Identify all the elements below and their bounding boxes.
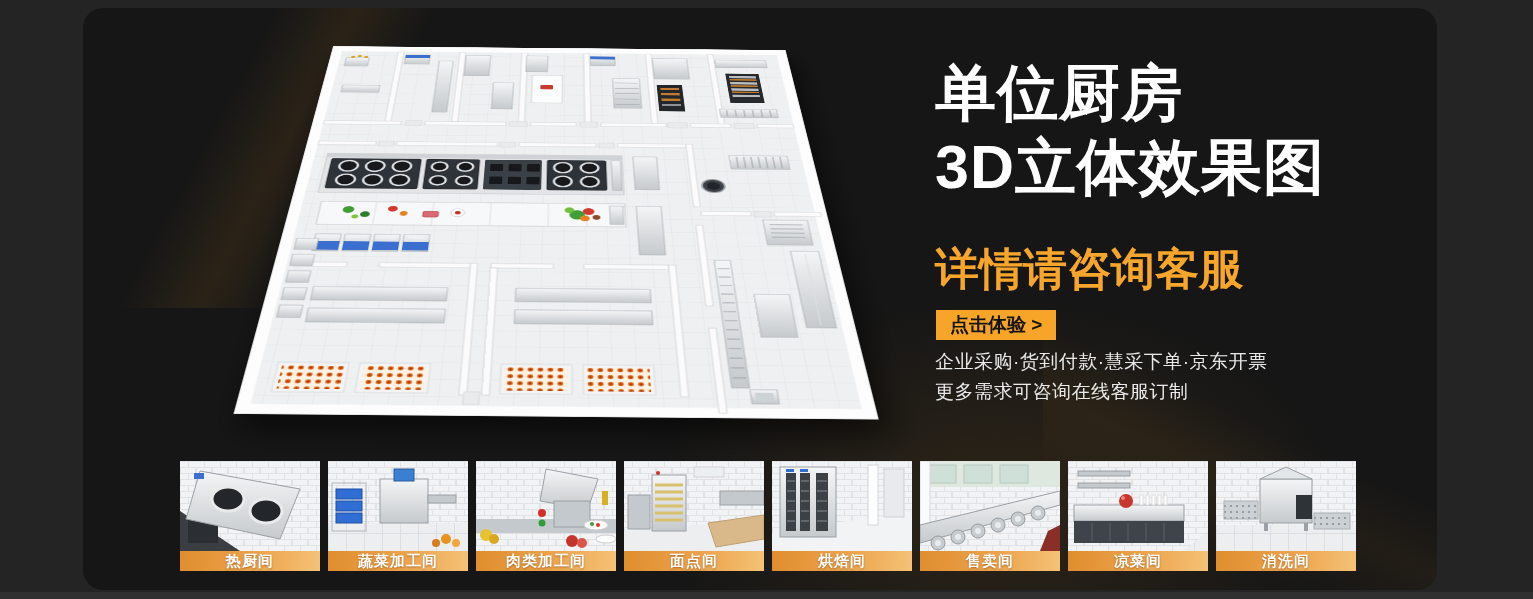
feature-line1: 企业采购·货到付款·慧采下单·京东开票	[935, 347, 1267, 377]
thumbnail-label: 热厨间	[180, 551, 320, 571]
thumb-art-cold-dish-room	[1068, 461, 1208, 551]
floorplan-art	[233, 46, 878, 420]
thumb-art-baking-room	[772, 461, 912, 551]
thumbnail-label: 面点间	[624, 551, 764, 571]
cta-button[interactable]: 点击体验 >	[936, 310, 1056, 340]
thumbnail-label: 烘焙间	[772, 551, 912, 571]
thumbnail-vegetable-processing[interactable]: 蔬菜加工间	[328, 461, 468, 571]
cooking-line	[318, 153, 624, 195]
bottom-divider	[0, 592, 1533, 599]
thumb-art-vegetable-processing	[328, 461, 468, 551]
promo-banner: 单位厨房 3D立体效果图 详情请咨询客服 点击体验 > 企业采购·货到付款·慧采…	[0, 0, 1533, 599]
thumb-art-meat-processing	[476, 461, 616, 551]
thumbnail-pastry-room[interactable]: 面点间	[624, 461, 764, 571]
prep-table	[316, 201, 626, 227]
thumbnail-label: 肉类加工间	[476, 551, 616, 571]
thumb-art-hot-kitchen	[180, 461, 320, 551]
thumb-art-serving-room	[920, 461, 1060, 551]
thumbnail-baking-room[interactable]: 烘焙间	[772, 461, 912, 571]
banner-card: 单位厨房 3D立体效果图 详情请咨询客服 点击体验 > 企业采购·货到付款·慧采…	[83, 8, 1437, 590]
thumbnail-label: 蔬菜加工间	[328, 551, 468, 571]
kitchen-3d-floorplan	[233, 46, 878, 420]
thumbnail-meat-processing[interactable]: 肉类加工间	[476, 461, 616, 571]
hero-title-line1: 单位厨房	[935, 56, 1325, 130]
hero-subtitle: 详情请咨询客服	[935, 240, 1243, 299]
feature-line2: 更多需求可咨询在线客服订制	[935, 377, 1267, 407]
thumb-art-pastry-room	[624, 461, 764, 551]
thumbnail-washing-room[interactable]: 消洗间	[1216, 461, 1356, 571]
thumbnail-hot-kitchen[interactable]: 热厨间	[180, 461, 320, 571]
hero-title-line2: 3D立体效果图	[935, 130, 1325, 204]
thumbnail-label: 售卖间	[920, 551, 1060, 571]
thumbnail-label: 凉菜间	[1068, 551, 1208, 571]
room-thumbnail-row: 热厨间 蔬菜加工间	[180, 461, 1356, 571]
hero-title: 单位厨房 3D立体效果图	[935, 56, 1325, 204]
thumbnail-label: 消洗间	[1216, 551, 1356, 571]
thumb-art-washing-room	[1216, 461, 1356, 551]
thumbnail-cold-dish-room[interactable]: 凉菜间	[1068, 461, 1208, 571]
thumbnail-serving-room[interactable]: 售卖间	[920, 461, 1060, 571]
hero-features: 企业采购·货到付款·慧采下单·京东开票 更多需求可咨询在线客服订制	[935, 347, 1267, 407]
